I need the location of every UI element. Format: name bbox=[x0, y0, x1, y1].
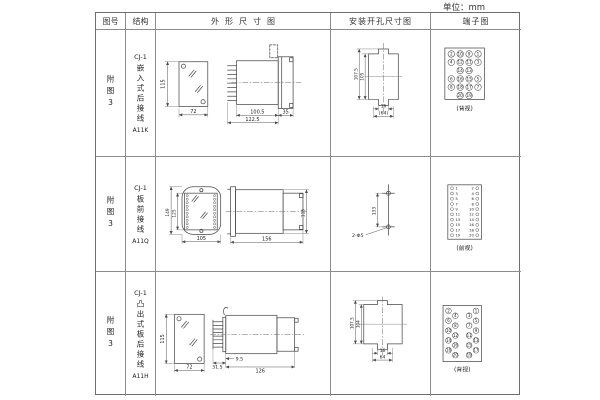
terminal-number: 10 bbox=[469, 207, 474, 211]
terminal-number: 20 bbox=[452, 352, 457, 357]
terminal-number: 8 bbox=[471, 202, 474, 206]
terminal-number: 9 bbox=[467, 51, 470, 56]
spec-table: 图号 结构 外形尺寸图 安装开孔尺寸图 端子图 附图3 CJ-1 嵌入式后接线 … bbox=[95, 12, 520, 395]
terminal-number: 16 bbox=[457, 76, 463, 81]
terminal-number: 6 bbox=[471, 197, 474, 201]
side-view bbox=[213, 307, 298, 353]
dim-label: 100.5 bbox=[250, 110, 264, 116]
front-view bbox=[179, 62, 208, 107]
outline-cell-a11k: 115 72 100.5 35 122.5 bbox=[156, 30, 331, 157]
terminal-number: 11 bbox=[466, 60, 472, 65]
terminal-number: 14 bbox=[457, 68, 463, 73]
terminal-number: 15 bbox=[455, 223, 460, 227]
fig-no: 附图3 bbox=[105, 75, 116, 111]
header-label: 外形尺寸图 bbox=[211, 16, 281, 27]
terminal-number: 1 bbox=[474, 308, 477, 313]
terminal-cell-a11h: 2 6 10 14 18 4 8 12 16 20 3 7 11 15 19 1 bbox=[431, 272, 521, 396]
dim-label: 126 bbox=[256, 368, 265, 374]
terminal-number: 2 bbox=[449, 51, 452, 56]
terminal-number: 4 bbox=[471, 192, 474, 196]
terminal-number: 3 bbox=[476, 60, 479, 65]
fig-no-cell-a11k: 附图3 bbox=[96, 30, 126, 157]
terminal-number: 11 bbox=[466, 332, 471, 337]
dim-label: 115 bbox=[160, 334, 166, 343]
outline-cell-a11q: 149 125 105 156 115 bbox=[156, 157, 331, 272]
dim-label: 105 bbox=[359, 72, 365, 80]
structure-cell-a11h: CJ-1 凸出式板后接线 A11H bbox=[126, 272, 156, 396]
extension-lines bbox=[169, 187, 309, 244]
terminal-cell-a11k: 2 10 9 1 4 12 11 3 14 13 6 16 15 5 8 18 bbox=[431, 30, 521, 157]
fig-no-cell-a11q: 附图3 bbox=[96, 157, 126, 272]
header-install-holes: 安装开孔尺寸图 bbox=[331, 13, 431, 30]
terminal-number: 17 bbox=[455, 228, 460, 232]
dim-label: 122.5 bbox=[245, 117, 259, 123]
terminal-number: 1 bbox=[476, 51, 479, 56]
terminal-number: 18 bbox=[469, 228, 474, 232]
terminal-diagram-a11k: 2 10 9 1 4 12 11 3 14 13 6 16 15 5 8 18 bbox=[432, 30, 521, 156]
terminal-number: 3 bbox=[467, 313, 470, 318]
structure-label: 板前接线 bbox=[135, 195, 146, 235]
terminal-number: 9 bbox=[474, 327, 477, 332]
terminal-number: 7 bbox=[476, 85, 479, 90]
manual-page: 单位：mm 图号 结构 外形尺寸图 安装开孔尺寸图 端子图 附图3 CJ-1 嵌… bbox=[0, 0, 600, 400]
dim-label: 133 bbox=[371, 207, 377, 216]
terminal-number: 13 bbox=[455, 218, 460, 222]
dim-label: 156 bbox=[262, 237, 271, 243]
terminal-number: 13 bbox=[473, 337, 478, 342]
terminal-number: 5 bbox=[474, 318, 477, 323]
dimensions: 115 72 100.5 35 122.5 bbox=[161, 62, 293, 123]
fig-no: 附图3 bbox=[105, 316, 116, 352]
header-outline-dims: 外形尺寸图 bbox=[156, 13, 331, 30]
terminal-diagram-a11q: 1 3 5 7 9 11 13 15 17 19 2 4 6 8 10 12 1 bbox=[432, 157, 521, 271]
cutout-shape bbox=[364, 300, 402, 349]
header-label: 结构 bbox=[133, 16, 149, 27]
outline-cell-a11h: 115 72 9.5 31.5 126 bbox=[156, 272, 331, 396]
terminal-number: 10 bbox=[457, 51, 463, 56]
terminal-number: 14 bbox=[469, 218, 474, 222]
hole-marks bbox=[382, 185, 394, 235]
structure-cell-a11k: CJ-1 嵌入式后接线 A11K bbox=[126, 30, 156, 157]
terminal-number: 18 bbox=[445, 347, 450, 352]
terminal-number: 5 bbox=[476, 76, 479, 81]
install-cell-a11q: 133 2-Φ5 bbox=[331, 157, 431, 272]
terminal-number: 8 bbox=[449, 85, 452, 90]
dim-label: 72 bbox=[186, 364, 192, 370]
structure-cell-a11q: CJ-1 板前接线 A11Q bbox=[126, 157, 156, 272]
terminal-number: 2 bbox=[471, 187, 474, 191]
dimensions: 115 72 9.5 31.5 126 bbox=[160, 314, 295, 374]
type-code: A11H bbox=[132, 373, 148, 380]
header-label: 端子图 bbox=[463, 16, 490, 27]
front-terminal-circles bbox=[186, 195, 216, 229]
terminal-diagram-a11h: 2 6 10 14 18 4 8 12 16 20 3 7 11 15 19 1 bbox=[432, 273, 521, 396]
terminal-number: 15 bbox=[466, 76, 472, 81]
terminal-circles bbox=[448, 51, 481, 99]
outline-drawing-a11k: 115 72 100.5 35 122.5 bbox=[156, 30, 330, 156]
terminal-number: 10 bbox=[445, 327, 450, 332]
terminal-number: 16 bbox=[452, 342, 457, 347]
terminal-number: 12 bbox=[457, 60, 463, 65]
dim-label: 115 bbox=[161, 79, 167, 88]
dim-label: 107.5 bbox=[353, 68, 359, 80]
outline-drawing-a11h: 115 72 9.5 31.5 126 bbox=[156, 273, 330, 396]
terminal-number: 7 bbox=[455, 202, 458, 206]
fig-no-cell-a11h: 附图3 bbox=[96, 272, 126, 396]
terminal-numbers: 2 6 10 14 18 4 8 12 16 20 3 7 11 15 19 1 bbox=[445, 308, 478, 357]
terminal-number: 18 bbox=[457, 85, 463, 90]
dimensions: 107.5 104 16 64 bbox=[350, 300, 393, 360]
dim-label: 72 bbox=[190, 109, 196, 115]
terminal-number: 16 bbox=[469, 223, 474, 227]
terminal-number: 20 bbox=[457, 93, 463, 98]
side-view bbox=[228, 45, 293, 108]
type-code: A11Q bbox=[132, 238, 148, 245]
dim-label: 125 bbox=[172, 209, 178, 217]
extension-lines bbox=[353, 300, 392, 362]
terminal-number: 3 bbox=[455, 192, 458, 196]
dim-label: 104 bbox=[356, 319, 361, 327]
terminal-number: 12 bbox=[452, 332, 457, 337]
terminal-numbers: 1 3 5 7 9 11 13 15 17 19 2 4 6 8 10 12 1 bbox=[455, 187, 474, 238]
install-drawing-a11q: 133 2-Φ5 bbox=[331, 157, 430, 271]
header-label: 安装开孔尺寸图 bbox=[349, 16, 412, 27]
install-drawing-a11h: 107.5 104 16 64 bbox=[331, 273, 430, 396]
terminal-number: 4 bbox=[449, 60, 452, 65]
header-structure: 结构 bbox=[126, 13, 156, 30]
view-label: (背视) bbox=[456, 104, 472, 112]
terminal-number: 14 bbox=[445, 337, 450, 342]
terminal-number: 9 bbox=[455, 207, 458, 211]
dim-label: 105 bbox=[197, 236, 206, 242]
dim-label: 9.5 bbox=[236, 356, 244, 362]
dim-label: 16 bbox=[380, 348, 386, 354]
dimensions: 133 2-Φ5 bbox=[352, 193, 386, 239]
terminal-number: 19 bbox=[466, 93, 472, 98]
dim-label: 35 bbox=[283, 110, 289, 116]
hole-label: 2-Φ5 bbox=[352, 233, 364, 239]
terminal-number: 8 bbox=[454, 323, 457, 328]
terminal-numbers: 2 10 9 1 4 12 11 3 14 13 6 16 15 5 8 18 bbox=[449, 51, 479, 98]
model-label: CJ-1 bbox=[134, 289, 147, 297]
terminal-number: 19 bbox=[466, 352, 471, 357]
dim-label: (64) bbox=[379, 111, 389, 117]
terminal-number: 7 bbox=[467, 323, 470, 328]
header-fig-no: 图号 bbox=[96, 13, 126, 30]
front-view bbox=[175, 314, 205, 363]
terminal-number: 19 bbox=[455, 234, 460, 238]
structure-label: 嵌入式后接线 bbox=[135, 64, 146, 124]
header-terminal-diagram: 端子图 bbox=[431, 13, 521, 30]
install-drawing-a11k: 107.5 105 16 (64) bbox=[331, 30, 430, 156]
terminal-number: 2 bbox=[447, 308, 450, 313]
view-label: (背视) bbox=[454, 365, 470, 373]
install-cell-a11h: 107.5 104 16 64 bbox=[331, 272, 431, 396]
terminal-number: 17 bbox=[466, 85, 472, 90]
terminal-number: 5 bbox=[455, 197, 458, 201]
outline-drawing-a11q: 149 125 105 156 115 bbox=[156, 157, 330, 271]
structure-label: 凸出式板后接线 bbox=[135, 300, 146, 370]
terminal-number: 6 bbox=[449, 76, 452, 81]
dim-label: 16 bbox=[381, 104, 387, 110]
type-code: A11K bbox=[133, 127, 149, 134]
terminal-number: 17 bbox=[473, 347, 478, 352]
terminal-number: 13 bbox=[466, 68, 472, 73]
terminal-number: 15 bbox=[466, 342, 471, 347]
header-label: 图号 bbox=[103, 16, 119, 27]
terminal-number: 1 bbox=[455, 187, 458, 191]
fig-no: 附图3 bbox=[105, 196, 116, 232]
install-cell-a11k: 107.5 105 16 (64) bbox=[331, 30, 431, 157]
model-label: CJ-1 bbox=[134, 53, 147, 61]
terminal-number: 20 bbox=[469, 234, 474, 238]
dim-label: 31.5 bbox=[212, 364, 223, 370]
dim-label: 107.5 bbox=[350, 316, 355, 328]
model-label: CJ-1 bbox=[134, 184, 147, 192]
extension-lines bbox=[357, 49, 394, 118]
dim-label: 149 bbox=[165, 208, 171, 216]
terminal-number: 12 bbox=[469, 213, 474, 217]
terminal-number: 11 bbox=[455, 213, 460, 217]
terminal-number: 6 bbox=[447, 318, 450, 323]
dim-label: 115 bbox=[300, 209, 306, 217]
dim-label: 64 bbox=[380, 354, 386, 360]
terminal-number: 4 bbox=[454, 313, 457, 318]
terminal-cell-a11q: 1 3 5 7 9 11 13 15 17 19 2 4 6 8 10 12 1 bbox=[431, 157, 521, 272]
view-label: (前视) bbox=[456, 244, 472, 252]
